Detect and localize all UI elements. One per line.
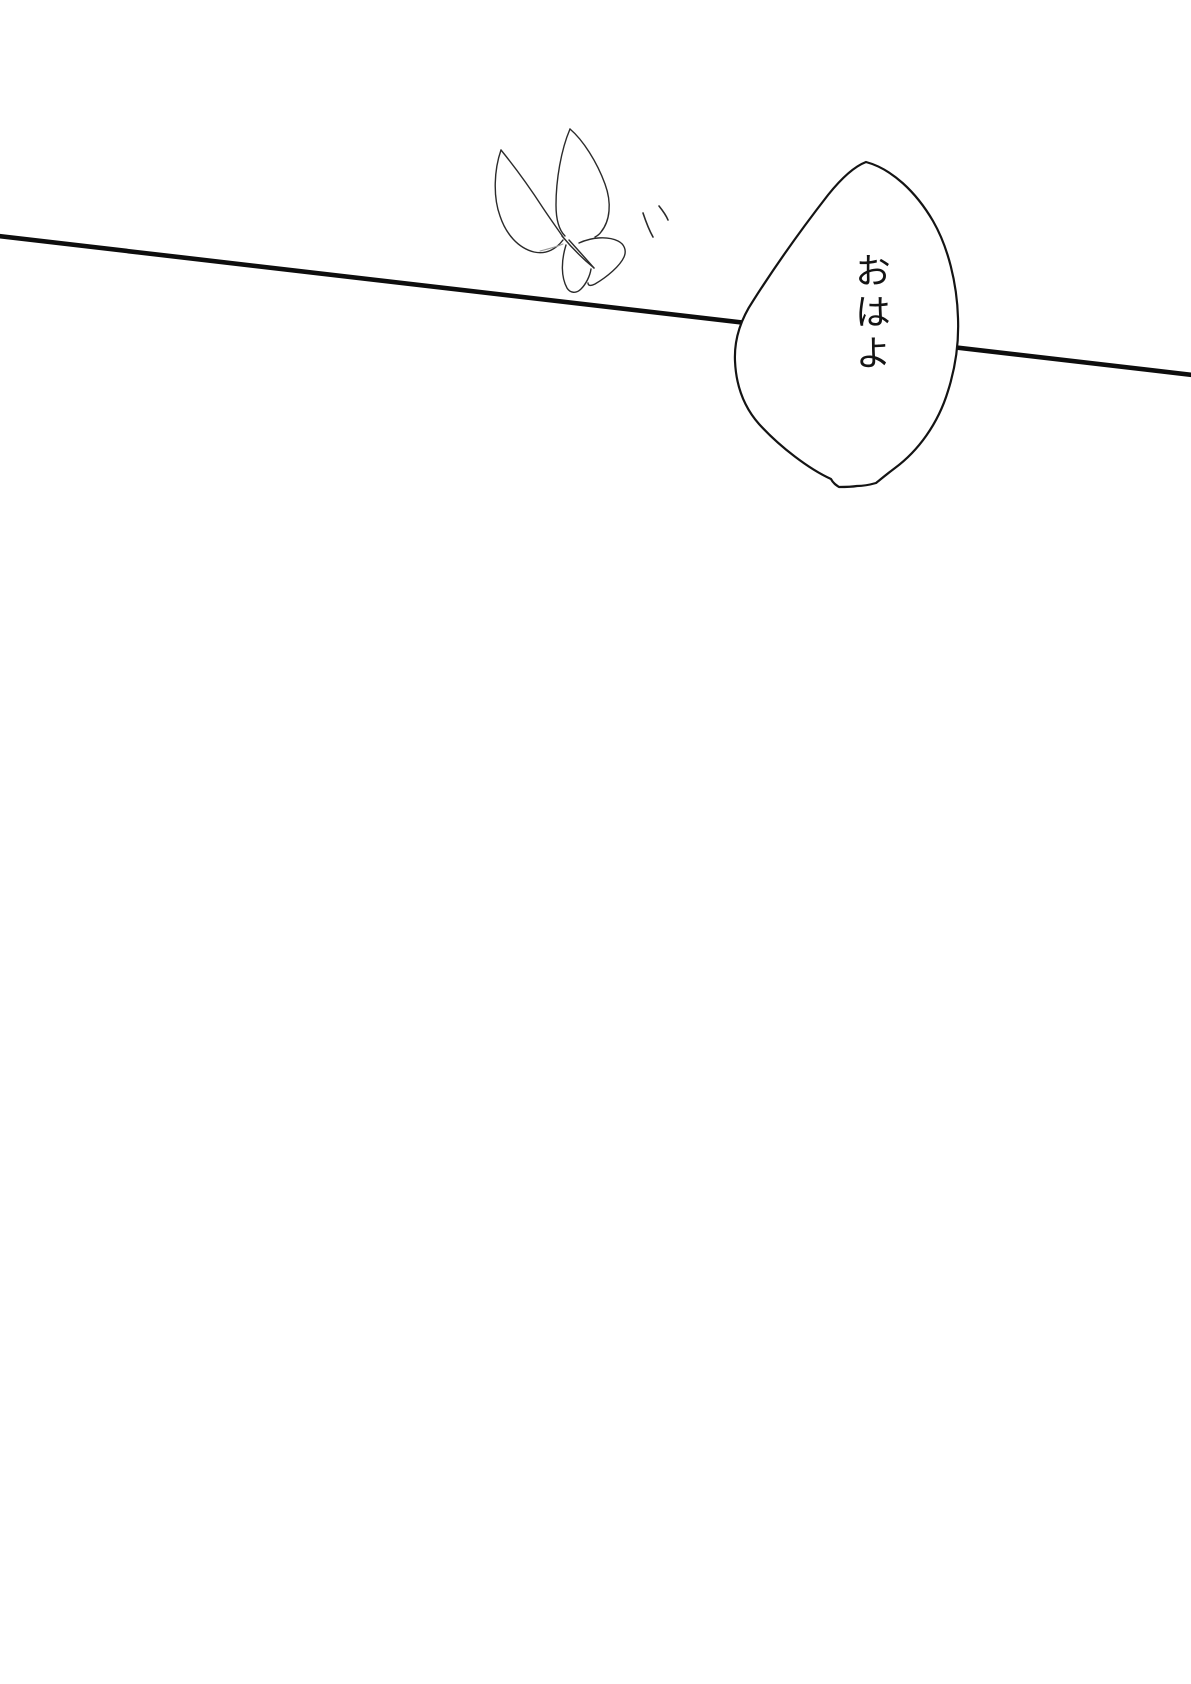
page-artwork [0,0,1191,1684]
flutter-marks-icon [643,206,668,237]
manga-page: おはよ [0,0,1191,1684]
butterfly-right-wing-inner [556,129,570,236]
flutter-mark-2 [659,206,668,220]
butterfly-abdomen-right [569,240,594,268]
speech-bubble-text: おはよ [842,252,888,387]
butterfly-left-wing-outer [495,150,563,253]
diagonal-wire-line [0,236,1191,375]
butterfly-right-wing-outer [570,129,609,237]
flutter-mark-1 [643,213,653,237]
butterfly-left-wing-inner [501,150,563,237]
butterfly-icon [495,129,625,292]
